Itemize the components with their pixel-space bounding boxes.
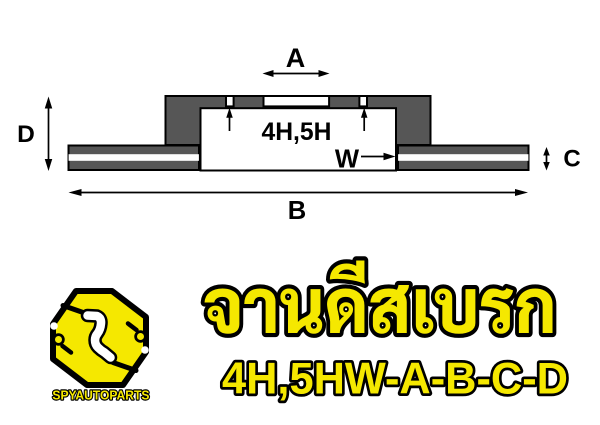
svg-text:SPYAUTOPARTS: SPYAUTOPARTS bbox=[52, 387, 149, 402]
svg-text:C: C bbox=[563, 146, 580, 173]
svg-text:B: B bbox=[288, 197, 306, 225]
svg-text:4H,5H: 4H,5H bbox=[262, 119, 332, 146]
svg-text:4H,5HW-A-B-C-D: 4H,5HW-A-B-C-D bbox=[222, 354, 568, 403]
svg-text:A: A bbox=[286, 43, 306, 73]
svg-text:W: W bbox=[335, 146, 360, 174]
svg-text:D: D bbox=[17, 121, 35, 148]
